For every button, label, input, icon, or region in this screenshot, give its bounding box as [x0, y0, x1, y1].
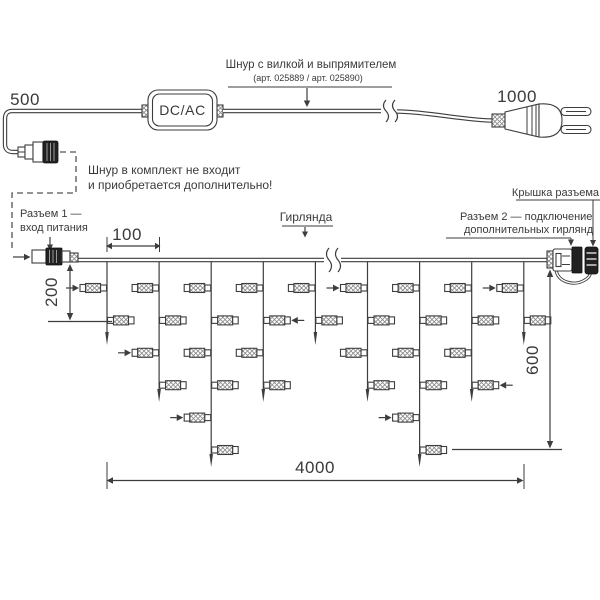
lamp-icon [393, 348, 420, 357]
drop-strand-2 [118, 262, 186, 402]
lamp-pointer-arrow-icon [379, 414, 392, 421]
lamp-icon [327, 284, 368, 293]
lamp-icon [66, 284, 107, 293]
dimension-200: 200 [42, 264, 112, 322]
dimension-4000: 4000 [107, 458, 525, 489]
lamp-icon [184, 284, 211, 293]
lamp-icon [212, 446, 239, 455]
drop-strand-7 [379, 262, 447, 467]
garland-diagram: 500 DC/AC [0, 0, 600, 600]
power-plug-icon [492, 104, 591, 137]
dim-500-label: 500 [10, 90, 40, 109]
lamp-icon [472, 316, 499, 325]
lamp-pointer-arrow-icon [483, 285, 496, 292]
lamp-icon [160, 381, 187, 390]
lamp-icon [132, 284, 159, 293]
cap-label: Крышка разъема [512, 187, 600, 199]
lamp-icon [236, 284, 262, 293]
lamp-icon [445, 348, 472, 357]
cord-note-line1: Шнур в комплект не входит [88, 163, 241, 177]
lamp-icon [184, 348, 211, 357]
lamp-icon [341, 348, 368, 357]
dim-200-label: 200 [42, 277, 61, 307]
connector-cap [585, 247, 598, 274]
dashed-connection-leader [12, 152, 76, 260]
connector2-label-line1: Разъем 2 — подключение [460, 211, 592, 223]
lamp-icon [368, 381, 395, 390]
connector1-label-line1: Разъем 1 — [20, 208, 82, 220]
lamp-icon [420, 446, 447, 455]
connector2-label-line2: дополнительных гирлянд [464, 224, 594, 236]
lamp-icon [445, 284, 472, 293]
lamp-icon [170, 413, 211, 422]
lamp-pointer-arrow-icon [327, 285, 340, 292]
drop-strand-6 [327, 262, 395, 402]
connector-2-assembly [547, 247, 598, 283]
drops-layer [66, 262, 551, 467]
lamp-icon [368, 316, 395, 325]
lamp-pointer-arrow-icon [170, 414, 183, 421]
lamp-icon [108, 316, 135, 325]
lamp-icon [160, 316, 187, 325]
dc-ac-label: DC/AC [159, 102, 206, 118]
drop-strand-3 [170, 262, 238, 467]
drop-strand-9 [483, 262, 551, 345]
cord-note-line2: и приобретается дополнительно! [88, 178, 272, 192]
cord-note: Шнур в комплект не входит и приобретаетс… [88, 163, 272, 192]
garland-section: Разъем 1 — вход питания [20, 187, 600, 489]
lamp-icon [524, 316, 551, 325]
lamp-pointer-arrow-icon [66, 285, 79, 292]
lamp-icon [472, 381, 513, 390]
lamp-icon [288, 284, 315, 293]
lamp-pointer-arrow-icon [118, 349, 131, 356]
connector1-label-line2: вход питания [20, 222, 88, 234]
lamp-icon [264, 381, 291, 390]
lamp-icon [420, 381, 447, 390]
cord-title: Шнур с вилкой и выпрямителем [226, 59, 397, 71]
connector-1-plug [18, 141, 58, 163]
lamp-icon [379, 413, 420, 422]
lamp-icon [316, 316, 343, 325]
lamp-icon [483, 284, 524, 293]
lamp-pointer-arrow-icon [291, 317, 304, 324]
garland-callout: Гирлянда [280, 210, 333, 238]
connector1-callout: Разъем 1 — вход питания [20, 208, 88, 251]
lamp-icon [118, 348, 159, 357]
lamp-icon [212, 316, 239, 325]
lamp-icon [420, 316, 447, 325]
drop-strand-5 [288, 262, 342, 345]
cord-callout: Шнур с вилкой и выпрямителем (арт. 02588… [226, 59, 397, 107]
dim-4000-label: 4000 [295, 458, 335, 477]
dim-1000-label: 1000 [497, 87, 537, 106]
dim-600-label: 600 [523, 345, 542, 375]
garland-main-wire [78, 247, 548, 273]
lamp-icon [236, 348, 262, 357]
lamp-icon [264, 316, 305, 325]
cord-art-numbers: (арт. 025889 / арт. 025890) [253, 73, 362, 83]
dimension-100: 100 [106, 225, 161, 252]
dim-100-label: 100 [112, 225, 142, 244]
diagram-canvas: 500 DC/AC [0, 0, 600, 600]
connector2-callout: Разъем 2 — подключение дополнительных ги… [446, 211, 594, 246]
power-cable-right [223, 97, 492, 125]
dimension-600: 600 [452, 270, 562, 450]
dc-ac-converter: DC/AC [142, 90, 223, 130]
lamp-pointer-arrow-icon [500, 382, 513, 389]
lamp-icon [393, 284, 420, 293]
garland-label: Гирлянда [280, 210, 333, 224]
drop-strand-1 [66, 262, 134, 345]
lamp-icon [212, 381, 239, 390]
connector-1-socket [32, 248, 78, 265]
